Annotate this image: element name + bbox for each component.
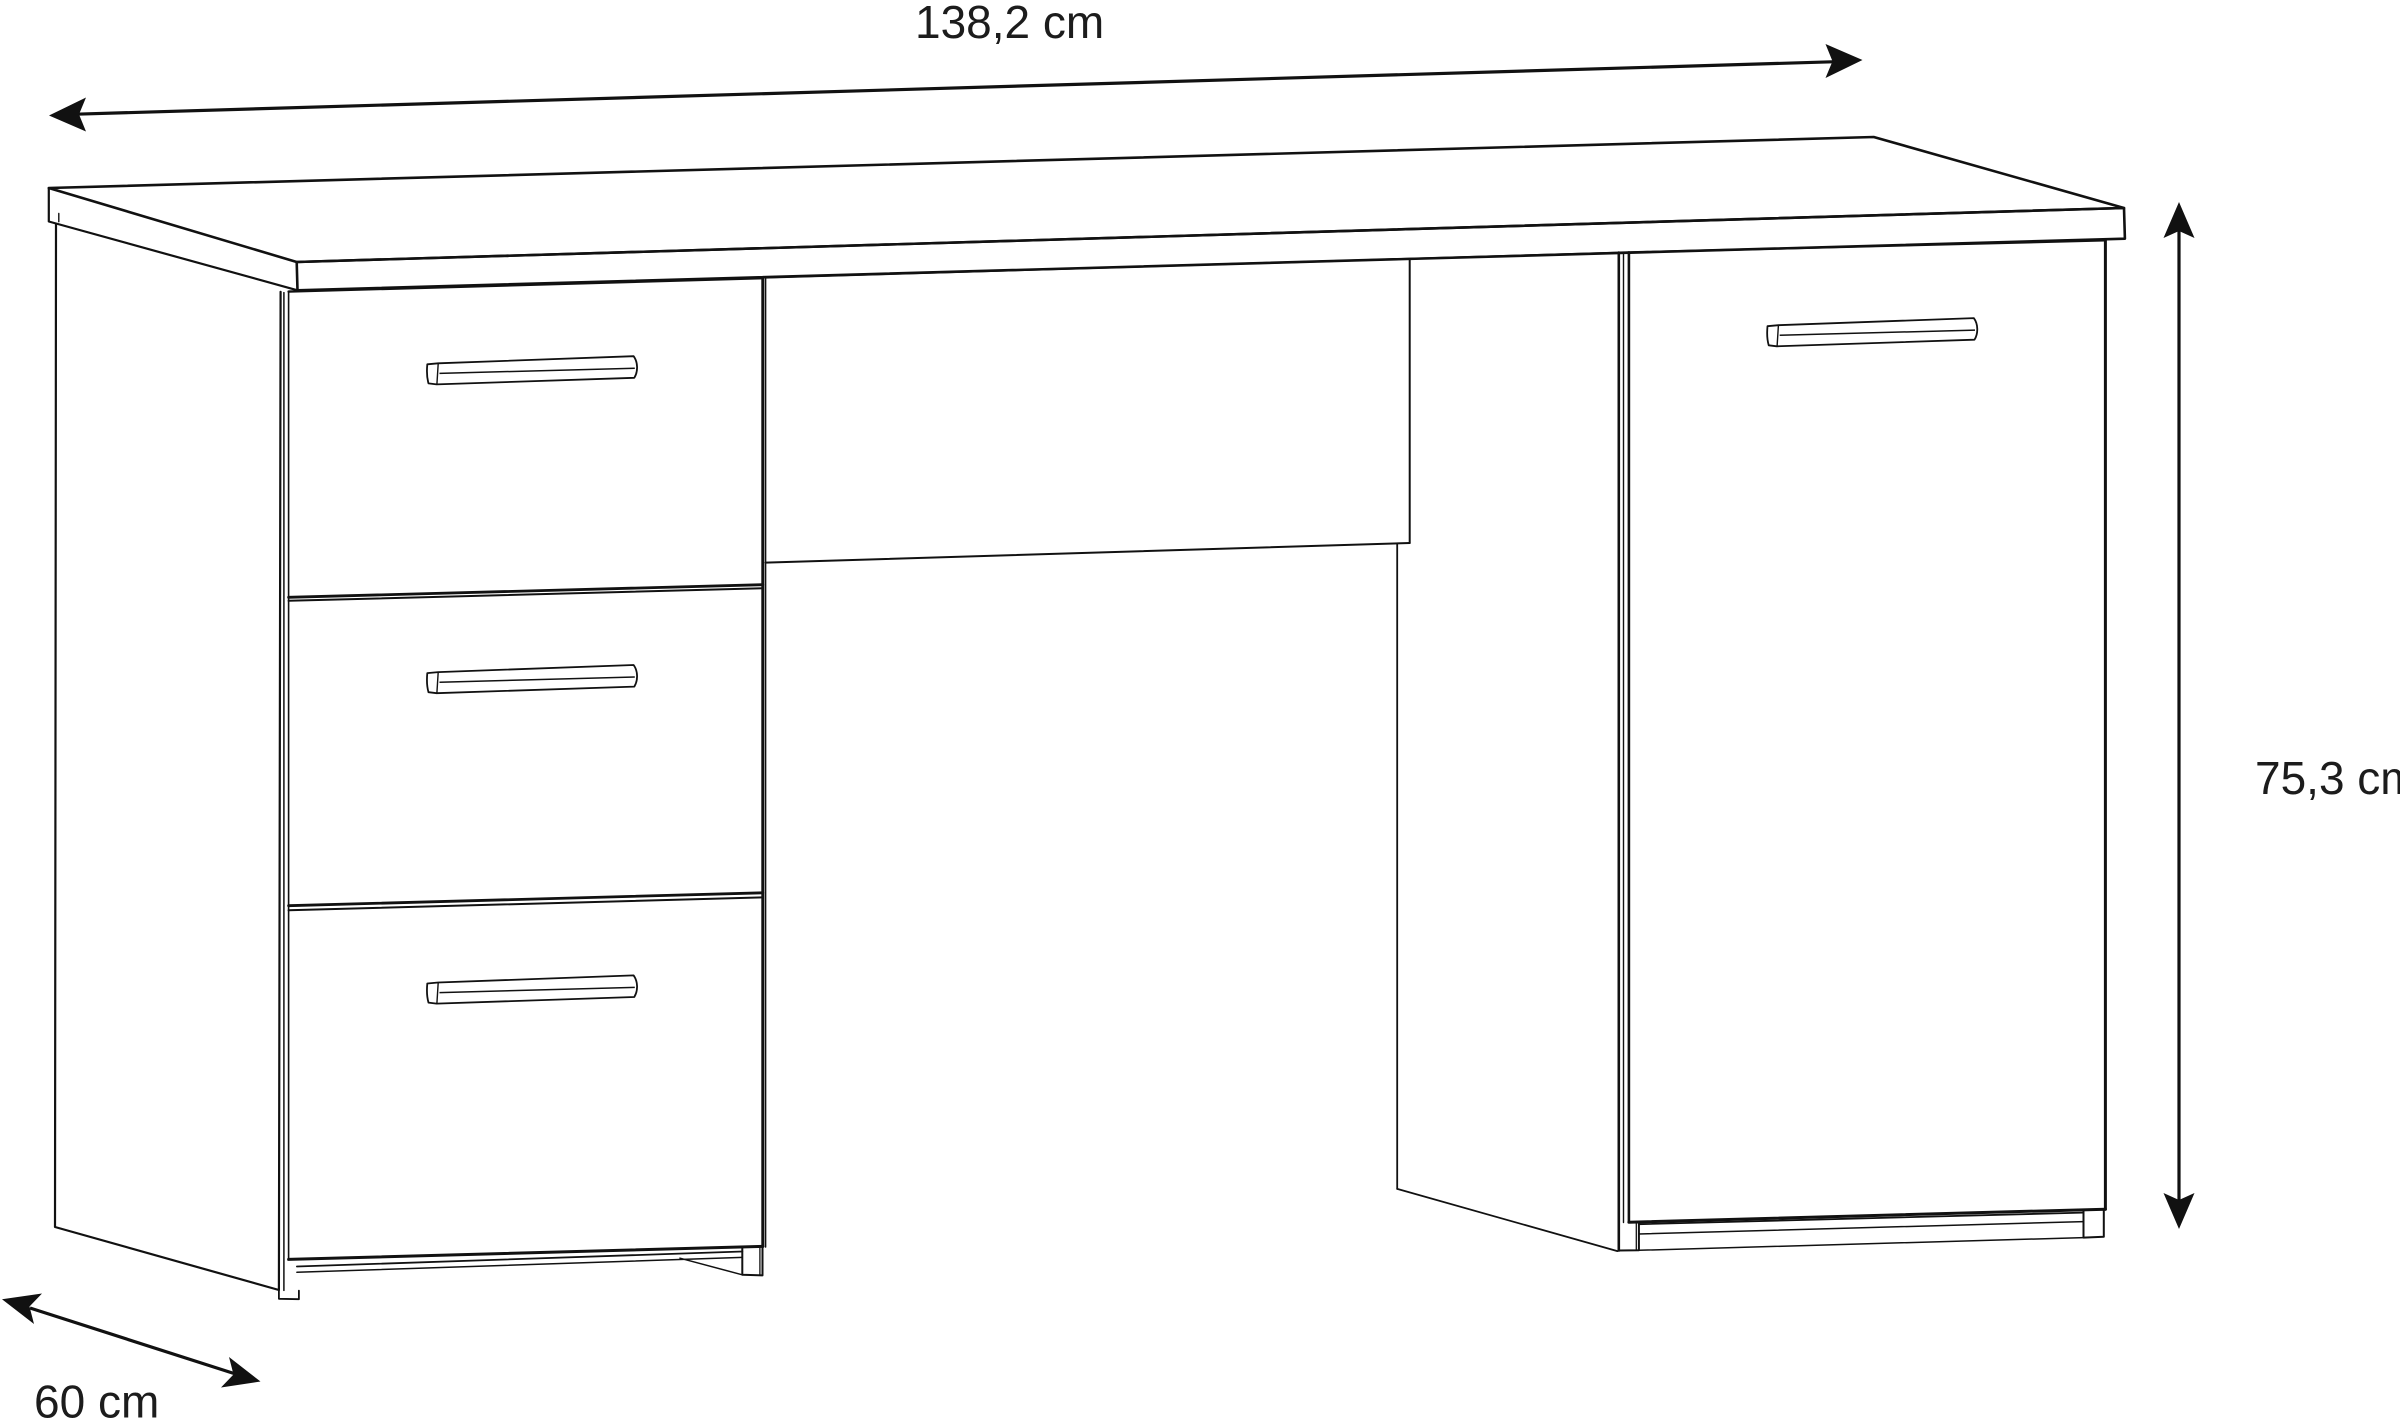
svg-text:60 cm: 60 cm: [34, 1376, 159, 1424]
svg-text:75,3 cm: 75,3 cm: [2255, 752, 2400, 804]
svg-text:138,2 cm: 138,2 cm: [915, 0, 1104, 48]
